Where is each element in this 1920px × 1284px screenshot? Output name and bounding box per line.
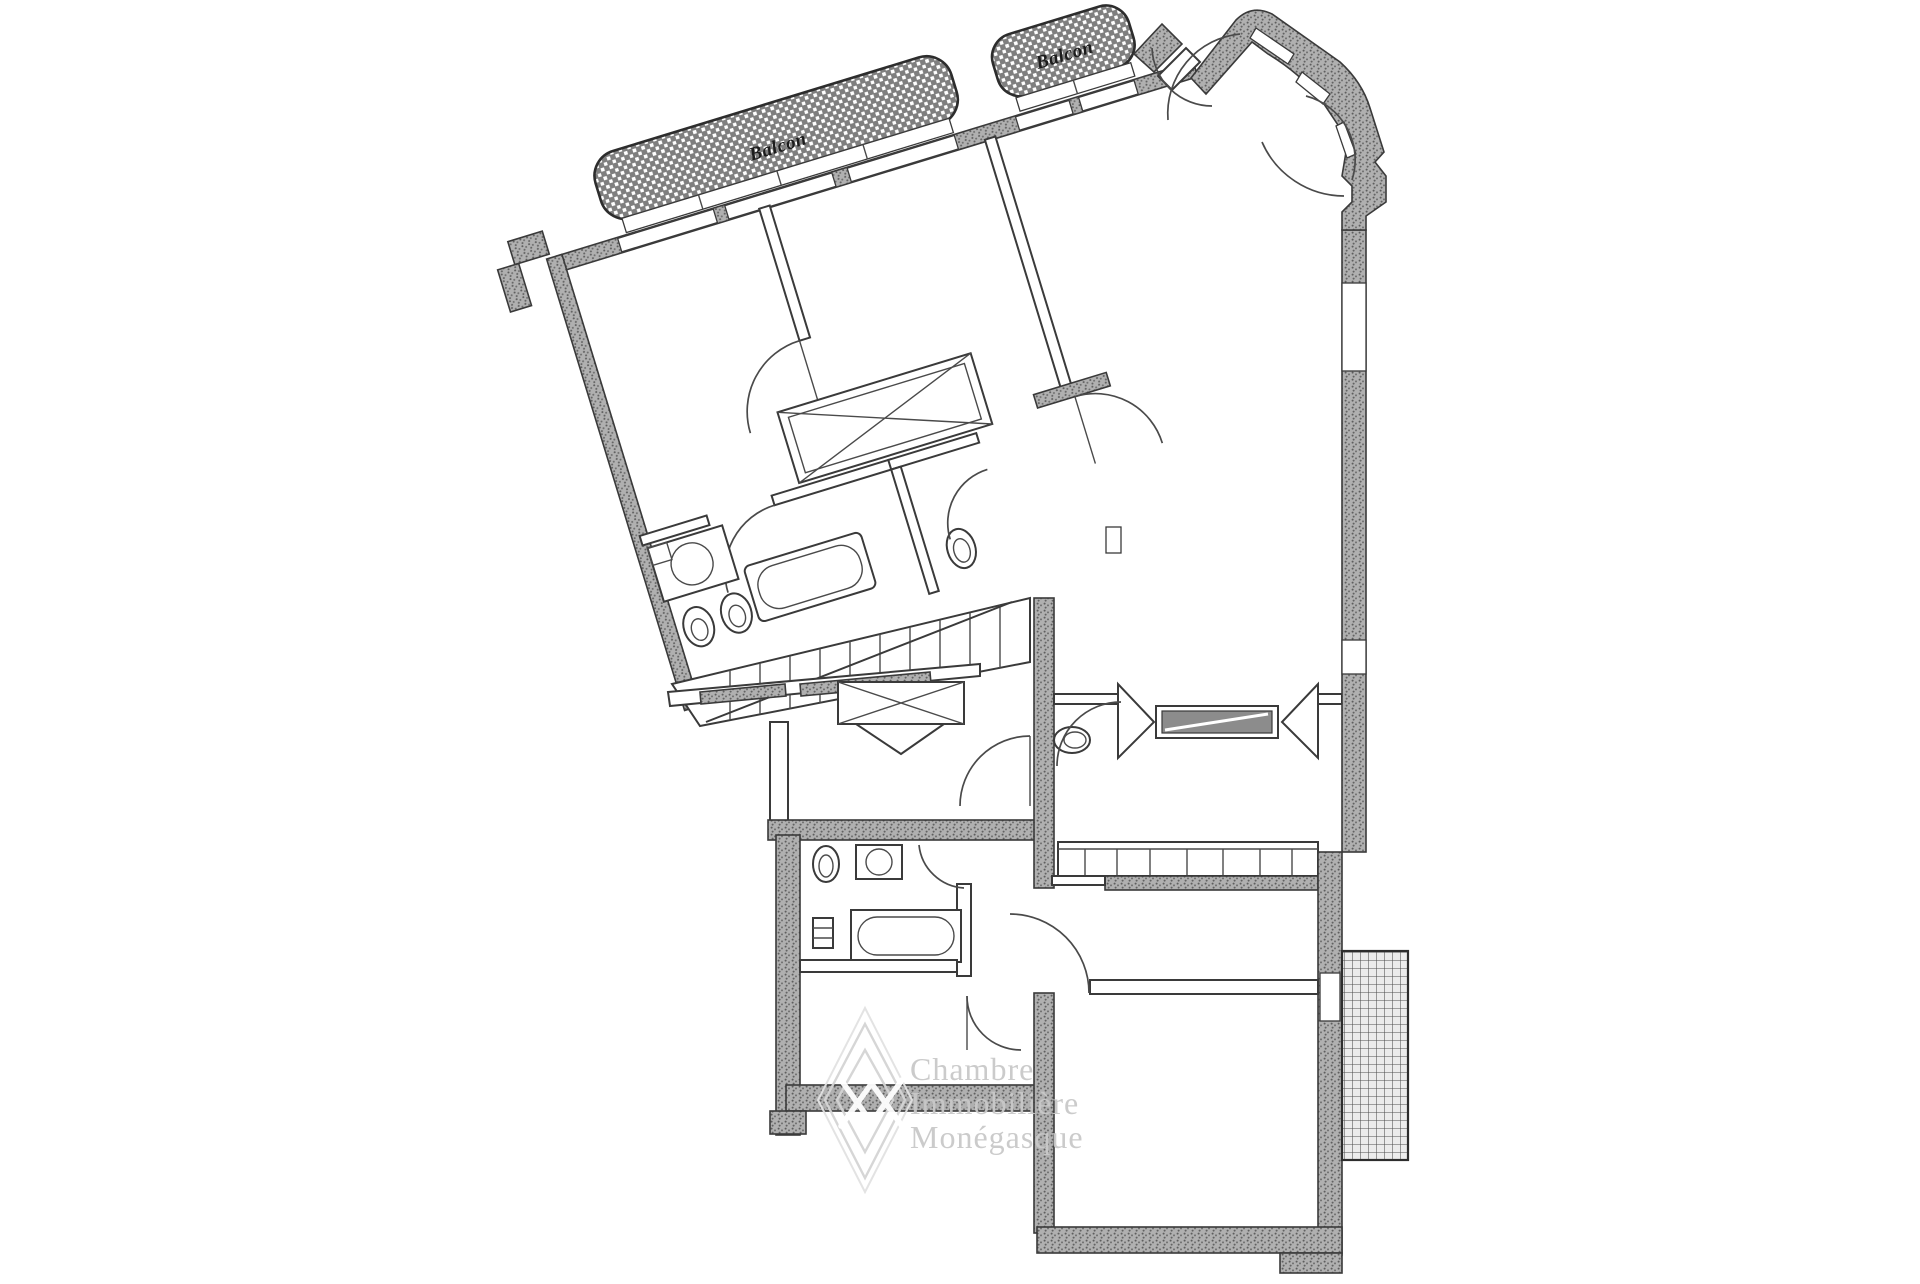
kitchen-bottom-wall	[1105, 876, 1318, 890]
wall-foot	[770, 1111, 806, 1134]
bath-dressing-wall	[800, 960, 957, 972]
balcony-left: Balcon	[588, 50, 968, 237]
wall-segment	[1052, 876, 1105, 885]
watermark-line-2: Immobilière	[910, 1085, 1079, 1121]
wall-foot	[1280, 1253, 1342, 1273]
door-swing-arc	[934, 469, 1004, 539]
wall-segment	[1034, 598, 1054, 888]
wall-segment	[759, 206, 810, 341]
vent-funnel-left	[1118, 684, 1154, 758]
kitchen-corridor	[1052, 684, 1342, 890]
washbasin-icon	[856, 845, 902, 879]
bay-wall	[1191, 10, 1386, 230]
wall-segment	[1318, 852, 1342, 1255]
bathtub-icon	[743, 531, 877, 622]
bedroom-partition-1	[688, 206, 831, 434]
door-swing-arc	[919, 845, 964, 888]
window-gap	[1342, 283, 1366, 371]
watermark-line-3: Monégasque	[910, 1119, 1084, 1155]
corner-step	[508, 231, 549, 264]
door-swing-arc	[1010, 914, 1089, 993]
hall-left-wall	[770, 722, 788, 836]
door-swing-arc	[967, 996, 1021, 1050]
wall-segment	[1318, 694, 1342, 704]
sink-icon	[716, 590, 756, 637]
radiator-icon	[813, 918, 833, 948]
terrace-grate	[1342, 951, 1408, 1160]
window-gap	[1342, 640, 1366, 674]
bathtub-icon	[851, 910, 961, 962]
kitchen-counter	[1058, 842, 1318, 876]
door-swing-arc	[1262, 142, 1344, 196]
entrance-bay	[1134, 10, 1386, 230]
door-swing-arc	[960, 736, 1030, 806]
vent-funnel-right	[1282, 684, 1318, 758]
terrace-door-gap	[1320, 973, 1340, 1021]
floor-plan-page: Balcon Balcon	[0, 0, 1920, 1284]
watermark-line-1: Chambre	[910, 1051, 1034, 1087]
wing-bathroom	[640, 459, 927, 654]
rotated-wing: Balcon Balcon	[474, 0, 1331, 725]
wall-segment	[891, 467, 939, 594]
entry-funnel	[856, 724, 944, 754]
bedroom-top-wall	[1090, 980, 1318, 994]
wall-stub	[1034, 372, 1111, 408]
outlet-mark	[1106, 527, 1121, 553]
wall-segment	[985, 137, 1072, 391]
wing-left-wall	[547, 254, 700, 710]
bedroom-bottom-wall	[1037, 1227, 1342, 1253]
wing-wc	[888, 433, 1017, 594]
sink-icon	[679, 603, 719, 650]
bathroom-top-wall	[768, 820, 1038, 840]
floor-plan-svg: Balcon Balcon	[0, 0, 1920, 1284]
door-leaf	[1075, 397, 1095, 464]
corner-step	[498, 263, 532, 312]
